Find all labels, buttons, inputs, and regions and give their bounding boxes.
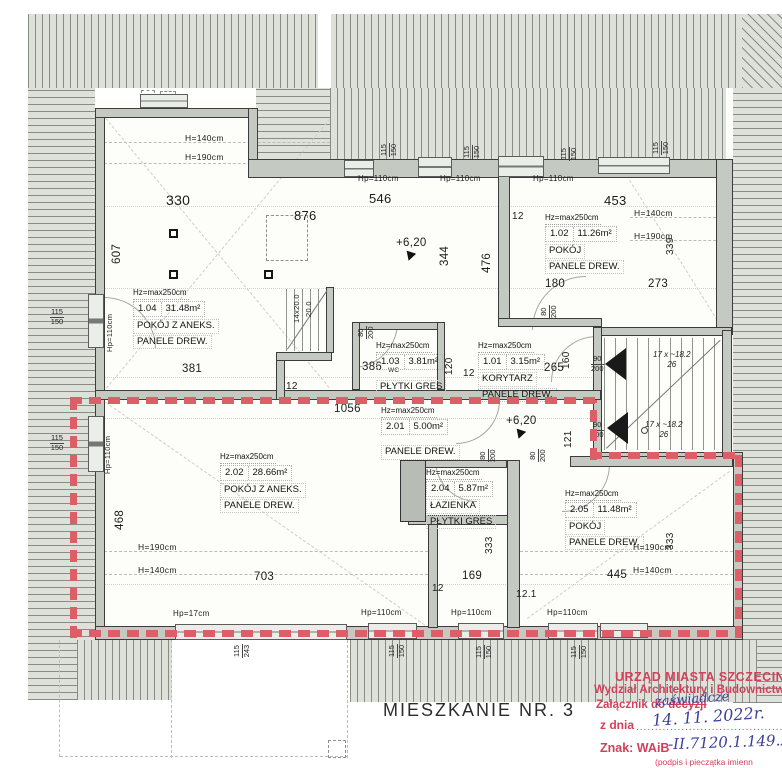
column-marker	[264, 270, 273, 279]
stair-riser-label: 17 x ~18.226	[645, 420, 683, 439]
dimension-label: 180	[545, 279, 565, 291]
dashed-outline	[328, 740, 346, 758]
room-floor-finish: PANELE DREW.	[133, 335, 212, 349]
level-mark-label: +6,20	[506, 416, 537, 428]
dimension-label: 344	[440, 246, 452, 266]
room-number: 1.03	[377, 355, 405, 369]
room-max-height-label: Hz=max250cm	[133, 289, 189, 300]
terrace-dotted-line	[347, 640, 348, 758]
dimension-label: H=190cm	[138, 543, 177, 552]
room-area: 28.66m²	[249, 466, 292, 480]
dimension-label: 876	[294, 209, 317, 222]
stair-riser-label: 17 x ~18.226	[653, 350, 691, 369]
size-fraction-label: 80200	[529, 449, 547, 462]
size-fraction-label: 80200	[357, 326, 375, 339]
room-label-block: Hz=max250cm2.0228.66m²POKÓJ Z ANEKS.PANE…	[220, 452, 306, 513]
room-max-height-label: Hz=max250cm	[426, 469, 482, 480]
room-number: 1.04	[134, 302, 162, 316]
room-max-height-label: Hz=max250cm	[376, 342, 432, 353]
roof-hatch-bottom-right	[350, 640, 757, 702]
window	[88, 416, 104, 472]
dimension-label: 453	[604, 194, 627, 207]
dimension-label: 120	[445, 357, 455, 375]
room-label-block: Hz=max250cm1.0211.26m²POKÓJPANELE DREW.	[545, 213, 624, 274]
roof-ridge-gap	[318, 14, 331, 88]
room-floor-finish: PANELE DREW.	[545, 260, 624, 274]
room-label-block: Hz=max250cm2.045.87m²ŁAZIENKAPŁYTKI GRES	[426, 468, 496, 529]
dimension-label: 330	[166, 193, 190, 207]
floor-plan-page: +6,20+6,203305468764531218027338112386WC…	[0, 0, 782, 768]
floor-plan-canvas: +6,20+6,203305468764531218027338112386WC…	[0, 0, 782, 768]
apartment-boundary	[70, 397, 77, 638]
room-number: 1.01	[479, 355, 507, 369]
roof-hatch-bottom-left	[77, 640, 172, 700]
dimension-label: 12	[512, 212, 524, 222]
wall	[95, 108, 105, 640]
room-max-height-label: Hz=max250cm	[381, 407, 437, 418]
dimension-label: 476	[482, 253, 494, 273]
wall	[593, 327, 732, 336]
room-max-height-label: Hz=max250cm	[565, 490, 621, 501]
room-max-height-label: Hz=max250cm	[545, 214, 601, 225]
dimension-label: H=140cm	[634, 209, 673, 218]
room-name: POKÓJ	[545, 244, 585, 258]
terrace-dotted-line	[59, 640, 60, 757]
apartment-boundary	[590, 400, 597, 460]
roof-hatch-corner	[742, 14, 782, 88]
roof-hatch-left	[28, 88, 95, 700]
wall	[95, 108, 255, 118]
window	[88, 294, 104, 348]
wall	[507, 460, 520, 628]
wall-duct-mass	[400, 460, 426, 522]
size-fraction-label: 115150	[50, 434, 64, 452]
room-number: 2.05	[566, 503, 594, 517]
apartment-boundary	[590, 452, 742, 459]
stair-direction-arrow-icon	[605, 348, 626, 380]
size-fraction-label: 115150	[388, 644, 406, 658]
dimension-label: 445	[607, 570, 627, 582]
wall	[428, 524, 438, 628]
size-fraction-label: 90200	[591, 355, 604, 373]
size-fraction-label: 115150	[380, 143, 398, 157]
room-name: POKÓJ Z ANEKS.	[133, 319, 219, 333]
dimension-label: 121	[564, 430, 574, 448]
dimension-label: 333	[485, 536, 495, 554]
size-fraction-label: 115150	[50, 308, 64, 326]
room-name: ŁAZIENKA	[426, 499, 480, 513]
room-label-block: Hz=max250cm1.0431.48m²POKÓJ Z ANEKS.PANE…	[133, 288, 219, 349]
room-area: 31.48m²	[162, 302, 205, 316]
column-marker	[169, 229, 178, 238]
wall	[326, 287, 334, 353]
dimension-label: 607	[112, 244, 124, 264]
dimension-label: Hp=110cm	[358, 175, 399, 183]
room-number: 2.01	[382, 420, 410, 434]
room-number: 2.04	[427, 482, 455, 496]
dimension-label: 339	[666, 237, 676, 255]
room-label-spacer	[376, 370, 446, 379]
room-area: 3.15m²	[507, 355, 545, 369]
column-marker	[169, 270, 178, 279]
apartment-boundary	[70, 397, 597, 404]
dimension-label: Hp=110cm	[104, 436, 112, 474]
wall	[498, 318, 602, 327]
room-max-height-label: Hz=max250cm	[478, 342, 534, 353]
size-fraction-label: 115150	[652, 141, 670, 155]
room-area: 5.00m²	[410, 420, 448, 434]
dimension-label: Hp=110cm	[451, 609, 492, 617]
dimension-line	[100, 584, 740, 585]
dimension-label: 12	[432, 584, 444, 594]
dimension-label: Hp=110cm	[547, 609, 588, 617]
room-label-spacer	[381, 435, 460, 444]
dimension-label: Hp=110cm	[361, 609, 402, 617]
dimension-label: 169	[462, 571, 482, 583]
apartment-boundary	[70, 630, 742, 637]
wall	[498, 172, 510, 325]
room-number: 2.02	[221, 466, 249, 480]
dimension-label: 160	[562, 351, 572, 369]
size-fraction-label: 115150	[475, 645, 493, 659]
dimension-label: 468	[115, 510, 127, 530]
wall	[716, 159, 733, 335]
drawing-title: MIESZKANIE NR. 3	[383, 700, 575, 721]
window	[598, 157, 670, 174]
size-fraction-label: 115150	[560, 147, 578, 161]
level-mark-label: +6,20	[396, 238, 427, 250]
dimension-label: 12	[286, 382, 298, 392]
window	[140, 94, 188, 108]
dimension-label: H=140cm	[185, 134, 224, 143]
size-fraction-label: 80200	[479, 449, 497, 462]
room-area: 3.81m²	[405, 355, 443, 369]
dimension-label: 333	[666, 532, 676, 550]
room-label-block: Hz=max250cm2.015.00m²PANELE DREW.	[381, 406, 460, 460]
room-name: POKÓJ Z ANEKS.	[220, 483, 306, 497]
dimension-label: 703	[254, 572, 274, 584]
room-label-block: Hz=max250cm1.013.15m²KORYTARZPANELE DREW…	[478, 341, 557, 402]
room-floor-finish: PANELE DREW.	[565, 536, 644, 550]
room-area: 11.48m²	[594, 503, 636, 517]
apartment-boundary	[735, 452, 742, 638]
dimension-label: H=140cm	[138, 566, 177, 575]
dimension-label: 273	[648, 279, 668, 291]
size-fraction-label: 115150	[463, 145, 481, 159]
room-floor-finish: PŁYTKI GRES	[376, 380, 446, 394]
terrace-dotted-line	[60, 756, 348, 757]
wall	[276, 352, 332, 361]
dimension-label: 546	[369, 192, 392, 205]
dimension-label: 12	[463, 369, 475, 379]
size-fraction-label: 80200	[540, 305, 558, 318]
dimension-label: H=190cm	[185, 153, 224, 162]
room-max-height-label: Hz=max250cm	[220, 453, 276, 464]
dimension-label: H=140cm	[633, 566, 672, 575]
terrace-dotted-line	[171, 640, 172, 758]
stair-direction-arrow-icon	[607, 412, 628, 444]
dimension-label: 1056	[334, 404, 361, 416]
size-fraction-label: 115150	[570, 645, 588, 659]
room-number: 1.02	[546, 227, 574, 241]
dimension-label: 12.1	[516, 590, 537, 600]
room-floor-finish: PANELE DREW.	[220, 499, 299, 513]
roof-hatch-top	[28, 14, 742, 88]
room-name: POKÓJ	[565, 520, 605, 534]
room-area: 11.26m²	[574, 227, 616, 241]
room-area: 5.87m²	[455, 482, 493, 496]
size-fraction-label: 115243	[233, 644, 251, 658]
dimension-label: Hp=110cm	[106, 314, 114, 352]
dimension-label: 14x20.0	[293, 294, 301, 323]
dimension-label: 20.0	[305, 301, 313, 317]
dimension-label: Hp=17cm	[173, 610, 210, 618]
room-name: KORYTARZ	[478, 372, 537, 386]
roof-hatch-hip	[256, 88, 330, 160]
room-floor-finish: PANELE DREW.	[381, 445, 460, 459]
dimension-label: Hp=110cm	[440, 175, 481, 183]
room-floor-finish: PŁYTKI GRES	[426, 515, 496, 529]
room-label-block: Hz=max250cm1.033.81m²PŁYTKI GRES	[376, 341, 446, 395]
dimension-line	[100, 206, 728, 207]
room-label-block: Hz=max250cm2.0511.48m²POKÓJPANELE DREW.	[565, 489, 644, 550]
dimension-label: Hp=110cm	[533, 175, 574, 183]
dimension-label: 381	[182, 364, 202, 376]
wall	[722, 330, 732, 460]
roof-height-line	[520, 551, 733, 552]
